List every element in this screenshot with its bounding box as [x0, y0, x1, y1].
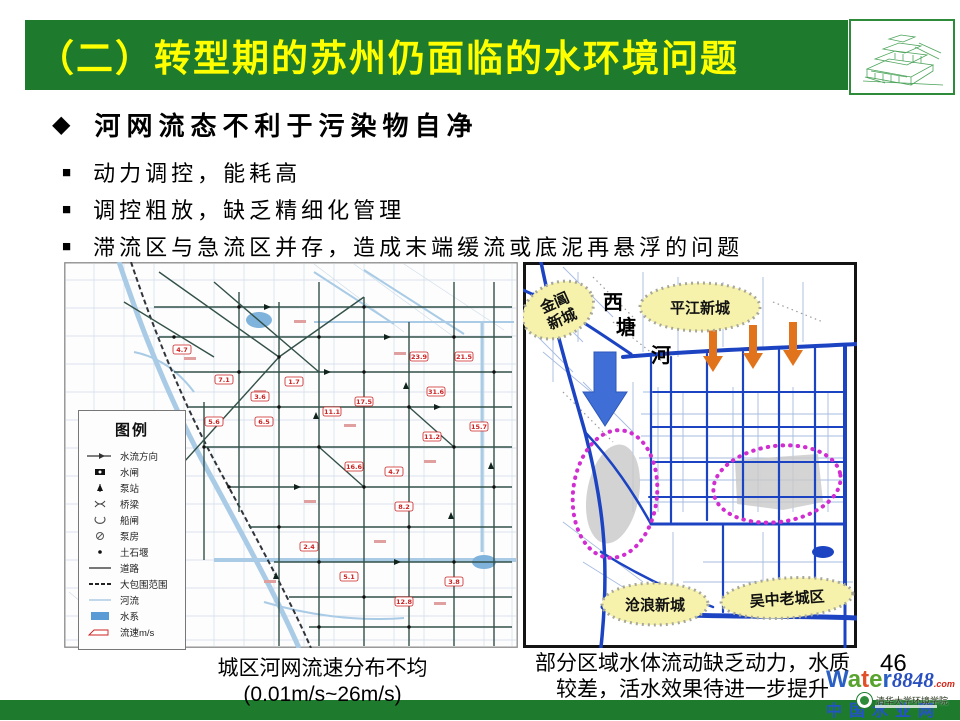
- svg-text:平江新城: 平江新城: [670, 299, 730, 317]
- water8848-logo: Water8848.com: [826, 666, 955, 694]
- svg-text:沧浪新城: 沧浪新城: [625, 596, 685, 614]
- section-heading-row: ◆ 河网流态不利于污染物自净: [52, 106, 478, 143]
- brand-com: .com: [934, 679, 955, 689]
- lake-shape: [812, 546, 834, 558]
- square-bullet-icon: ■: [62, 238, 71, 255]
- svg-text:12.8: 12.8: [396, 598, 413, 606]
- bullet-text: 动力调控，能耗高: [93, 156, 301, 188]
- bridge-icon: [85, 499, 115, 509]
- svg-text:15.7: 15.7: [471, 423, 487, 431]
- svg-text:3.6: 3.6: [254, 393, 266, 401]
- svg-text:塘: 塘: [616, 315, 636, 339]
- building-sketch-icon: [855, 25, 949, 89]
- brand-letter: t: [861, 666, 869, 693]
- flow-direction-icon: [85, 451, 115, 461]
- caption-line: 城区河网流速分布不均: [150, 656, 495, 682]
- legend-row: 泵房: [85, 528, 179, 544]
- svg-text:11.2: 11.2: [424, 433, 440, 441]
- square-bullet-icon: ■: [62, 164, 71, 181]
- svg-text:11.1: 11.1: [324, 408, 341, 416]
- brand-number: 8848: [892, 668, 934, 692]
- legend-row: 船闸: [85, 512, 179, 528]
- svg-text:5.1: 5.1: [343, 573, 355, 581]
- left-map-caption: 城区河网流速分布不均 (0.01m/s~26m/s): [150, 656, 495, 708]
- diamond-bullet-icon: ◆: [52, 110, 70, 139]
- slide-canvas: { "slide": { "title": "（二）转型期的苏州仍面临的水环境问…: [0, 0, 960, 720]
- svg-text:4.7: 4.7: [388, 468, 400, 476]
- slide-header-bar: （二）转型期的苏州仍面临的水环境问题: [25, 20, 848, 90]
- square-bullet-icon: ■: [62, 201, 71, 218]
- university-emblem-icon: [856, 692, 873, 709]
- svg-text:3.8: 3.8: [448, 578, 460, 586]
- sluice-gate-icon: [85, 467, 115, 477]
- legend-row: 水系: [85, 608, 179, 624]
- map-legend: 图例 水流方向 水闸 泵站 桥梁 船闸 泵房 土石堰 道路 大包围范围 河流: [78, 410, 186, 650]
- caption-line: 部分区域水体流动缺乏动力，水质: [515, 651, 870, 677]
- water-flow-problem-map: 金阊 新城 平江新城 沧浪新城 吴中老城区 西 塘 河: [523, 262, 857, 648]
- legend-row: 道路: [85, 560, 179, 576]
- emblem-subtext-line: [875, 705, 937, 708]
- svg-text:21.5: 21.5: [456, 353, 473, 361]
- ship-lock-icon: [85, 515, 115, 525]
- water-system-icon: [85, 611, 115, 621]
- svg-text:4.7: 4.7: [176, 346, 188, 354]
- svg-text:2.4: 2.4: [303, 543, 315, 551]
- legend-title: 图例: [85, 419, 179, 440]
- svg-text:8.2: 8.2: [398, 503, 410, 511]
- bullet-text: 滞流区与急流区并存，造成末端缓流或底泥再悬浮的问题: [93, 230, 743, 262]
- river-icon: [85, 595, 115, 605]
- bullet-item: ■ 动力调控，能耗高: [62, 156, 301, 188]
- pump-station-icon: [85, 483, 115, 493]
- bullet-item: ■ 滞流区与急流区并存，造成末端缓流或底泥再悬浮的问题: [62, 230, 743, 262]
- svg-text:5.6: 5.6: [208, 418, 220, 426]
- svg-text:7.1: 7.1: [218, 376, 230, 384]
- pump-house-icon: [85, 531, 115, 541]
- svg-text:17.5: 17.5: [356, 398, 373, 406]
- section-heading: 河网流态不利于污染物自净: [94, 106, 478, 143]
- svg-text:1.7: 1.7: [288, 378, 300, 386]
- enclosure-boundary-icon: [85, 579, 115, 589]
- district-label-canglang: 沧浪新城: [602, 583, 708, 625]
- svg-text:河: 河: [651, 343, 671, 367]
- page-title: （二）转型期的苏州仍面临的水环境问题: [25, 28, 739, 82]
- bullet-text: 调控粗放，缺乏精细化管理: [93, 193, 405, 225]
- legend-row: 流速m/s: [85, 624, 179, 640]
- right-map-caption: 部分区域水体流动缺乏动力，水质 较差，活水效果待进一步提升: [515, 651, 870, 703]
- architecture-sketch-logo: [849, 19, 955, 95]
- velocity-box-icon: [85, 627, 115, 637]
- svg-text:西: 西: [603, 290, 623, 314]
- road-icon: [85, 563, 115, 573]
- district-label-pingjiang: 平江新城: [640, 283, 760, 331]
- svg-text:31.6: 31.6: [428, 388, 445, 396]
- svg-text:16.6: 16.6: [346, 463, 363, 471]
- legend-row: 水闸: [85, 464, 179, 480]
- weir-icon: [85, 547, 115, 557]
- legend-row: 大包围范围: [85, 576, 179, 592]
- city-river-map-image: 金阊 新城 平江新城 沧浪新城 吴中老城区 西 塘 河: [523, 262, 857, 648]
- svg-text:23.9: 23.9: [411, 353, 428, 361]
- legend-row: 泵站: [85, 480, 179, 496]
- legend-row: 土石堰: [85, 544, 179, 560]
- bullet-item: ■ 调控粗放，缺乏精细化管理: [62, 193, 405, 225]
- institution-emblem: 清华大学环境学院: [856, 692, 948, 709]
- caption-line: (0.01m/s~26m/s): [150, 682, 495, 708]
- legend-row: 河流: [85, 592, 179, 608]
- brand-letter: a: [848, 666, 861, 693]
- svg-text:6.5: 6.5: [258, 418, 270, 426]
- legend-row: 桥梁: [85, 496, 179, 512]
- caption-line: 较差，活水效果待进一步提升: [515, 677, 870, 703]
- brand-letter: W: [826, 666, 848, 693]
- brand-letter: e: [869, 666, 882, 693]
- legend-row: 水流方向: [85, 448, 179, 464]
- brand-letter: r: [882, 666, 891, 693]
